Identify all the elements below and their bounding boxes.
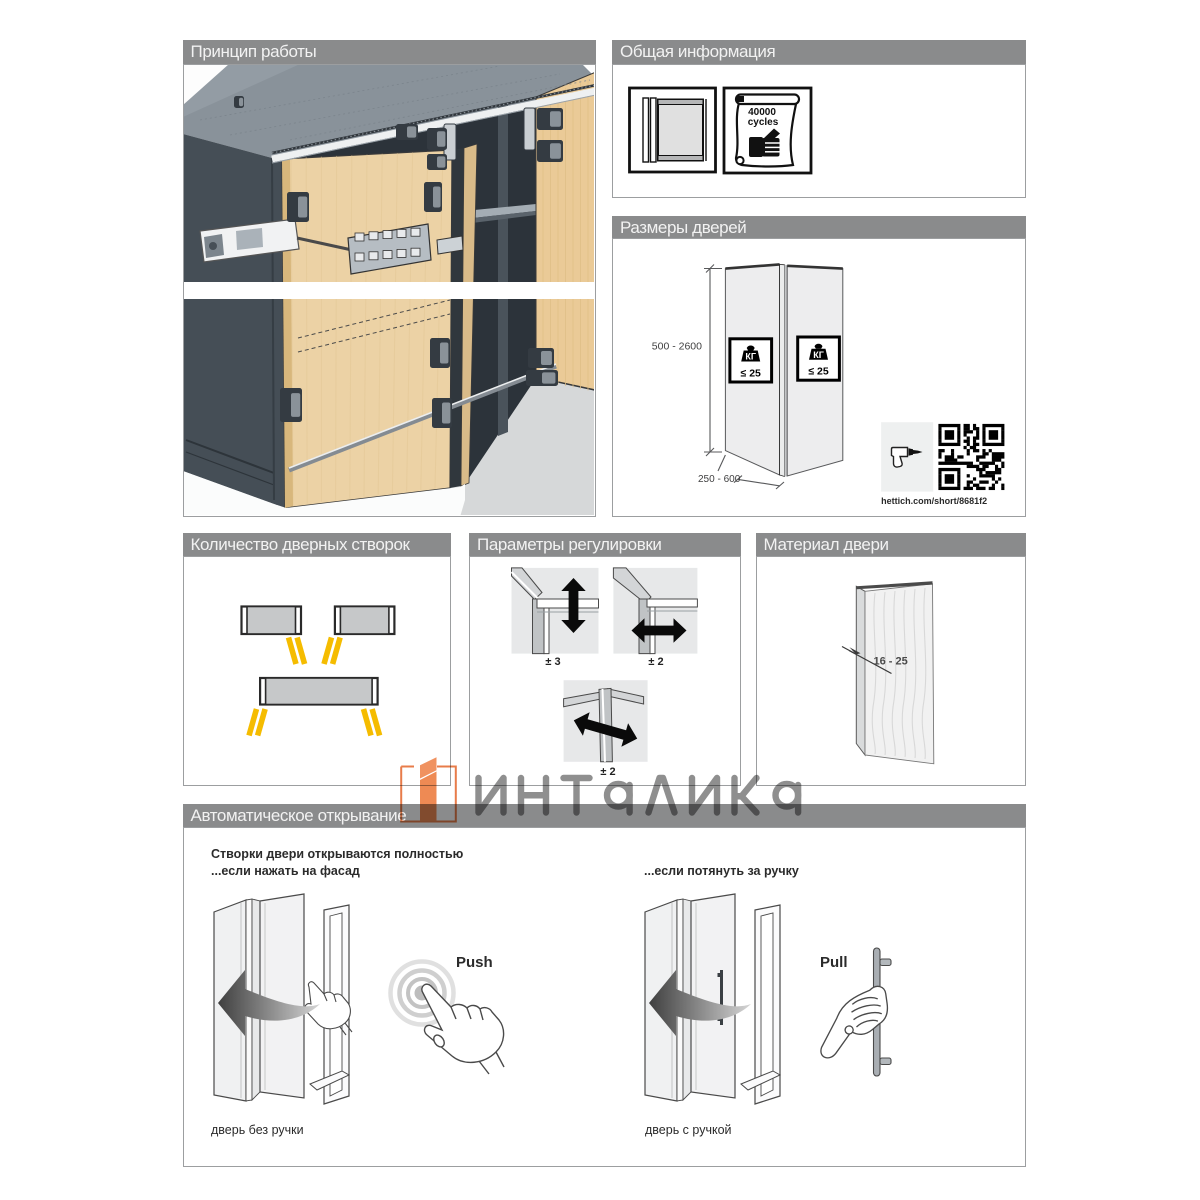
svg-text:16 - 25: 16 - 25 <box>874 656 908 668</box>
svg-text:КГ: КГ <box>745 352 756 362</box>
svg-text:...если потянуть за ручку: ...если потянуть за ручку <box>644 864 799 878</box>
svg-text:± 2: ± 2 <box>648 656 663 668</box>
svg-text:± 3: ± 3 <box>545 656 560 668</box>
svg-text:Push: Push <box>456 954 493 971</box>
svg-text:дверь с ручкой: дверь с ручкой <box>645 1123 732 1137</box>
svg-text:КГ: КГ <box>813 350 824 360</box>
svg-text:≤ 25: ≤ 25 <box>740 368 761 380</box>
svg-text:Створки двери открываются полн: Створки двери открываются полностью <box>211 847 464 861</box>
svg-text:Pull: Pull <box>820 954 848 971</box>
svg-text:≤ 25: ≤ 25 <box>808 366 829 378</box>
svg-text:hettich.com/short/8681f2: hettich.com/short/8681f2 <box>881 496 987 506</box>
svg-text:дверь без ручки: дверь без ручки <box>211 1123 304 1137</box>
svg-text:...если нажать на фасад: ...если нажать на фасад <box>211 864 360 878</box>
svg-text:250 - 600: 250 - 600 <box>698 474 741 485</box>
svg-text:500 - 2600: 500 - 2600 <box>651 341 701 353</box>
svg-text:cycles: cycles <box>747 117 778 128</box>
